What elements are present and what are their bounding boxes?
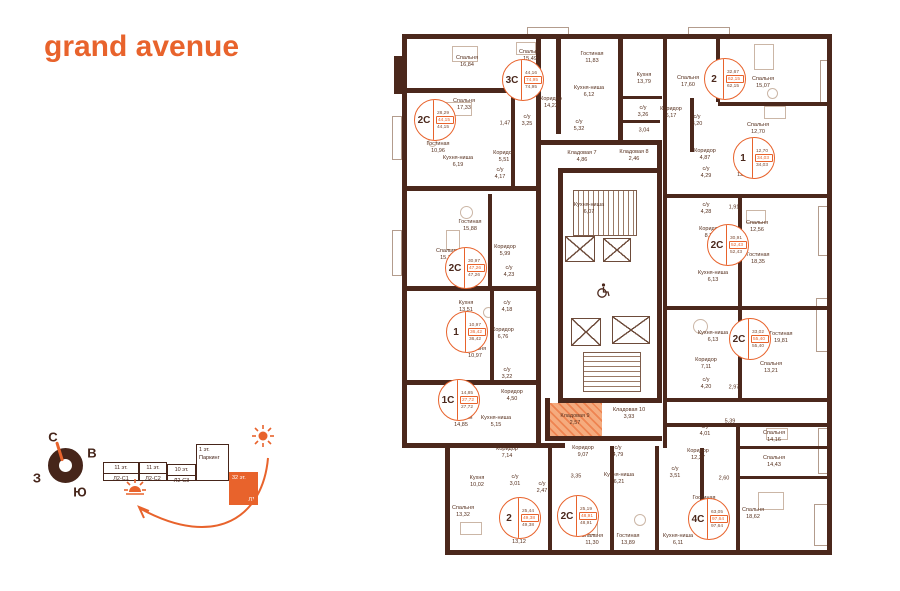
elevator-shaft-icon (603, 238, 631, 262)
unit-badge-2С[interactable]: 2С30,9152,4352,43 (707, 224, 749, 266)
room-label: Гостиная11,83 (580, 51, 603, 65)
furniture (754, 44, 774, 70)
room-label: Спальня13,32 (452, 505, 474, 519)
room-label: с/у4,28 (701, 202, 712, 216)
room-label: с/у3,25 (522, 114, 533, 128)
room-label: с/у3,22 (502, 367, 513, 381)
room-label-storage-selected[interactable]: Кладовая 92,57 (560, 413, 589, 427)
room-label: с/у4,17 (495, 167, 506, 181)
staircase-lower (583, 352, 641, 392)
room-label: Кухня-ниша6,21 (604, 472, 634, 486)
wall (488, 194, 492, 286)
unit-type-label: 2С (446, 248, 465, 288)
unit-badge-2[interactable]: 225,4449,3849,38 (499, 497, 541, 539)
room-label: с/у3,01 (510, 474, 521, 488)
room-label: Кухня-ниша6,11 (663, 533, 693, 547)
unit-badge-2С[interactable]: 2С30,9747,2647,26 (445, 247, 487, 289)
room-label: Кладовая 103,93 (613, 407, 645, 421)
room-label: Коридор6,17 (660, 106, 682, 120)
wall (663, 398, 830, 402)
wall (402, 186, 540, 191)
room-label: Спальня13,21 (760, 361, 782, 375)
room-label: с/у2,47 (537, 481, 548, 495)
room-label: Кладовая 82,46 (619, 149, 648, 163)
unit-badge-1С[interactable]: 1С14,8527,7227,72 (438, 379, 480, 421)
room-label: Коридор5,99 (494, 244, 516, 258)
unit-badge-4С[interactable]: 4С63,0597,6497,64 (688, 498, 730, 540)
room-label: Коридор6,76 (492, 327, 514, 341)
room-label: Коридор4,87 (694, 148, 716, 162)
room-label: Гостиная18,35 (746, 252, 769, 266)
room-label: 3,04 (639, 127, 650, 134)
room-label: Гостиная19,81 (769, 331, 792, 345)
room-label: Спальня12,70 (747, 122, 769, 136)
room-label: с/у4,23 (504, 265, 515, 279)
floor-plan-page: grand avenue С В З Ю 11 эт. Л2-С1 11 эт.… (0, 0, 900, 591)
room-label: Коридор7,14 (496, 446, 518, 460)
room-label: Коридор12,37 (687, 448, 709, 462)
wall (618, 34, 623, 144)
wall (736, 425, 740, 552)
room-label: Спальня14,16 (763, 430, 785, 444)
unit-type-label: 2С (558, 496, 577, 536)
unit-type-label: 1 (447, 312, 466, 352)
wall (740, 446, 830, 449)
unit-type-label: 2 (705, 59, 724, 99)
room-label: Гостиная13,89 (616, 533, 639, 547)
room-label: Спальня15,07 (752, 76, 774, 90)
wall (740, 476, 830, 479)
unit-badge-2С[interactable]: 2С25,1948,9148,91 (557, 495, 599, 537)
room-label: Коридор9,07 (572, 445, 594, 459)
room-label: Коридор14,23 (540, 96, 562, 110)
room-label: 2,60 (719, 475, 730, 482)
room-label: Кладовая 74,86 (567, 150, 596, 164)
wall (402, 34, 832, 39)
unit-badge-1[interactable]: 112,7034,0334,03 (733, 137, 775, 179)
room-label: Коридор7,11 (695, 357, 717, 371)
room-label: Гостиная15,88 (458, 219, 481, 233)
room-label: Спальня17,60 (677, 75, 699, 89)
wall (445, 550, 832, 555)
wall (618, 120, 660, 123)
wall (511, 96, 515, 190)
wall (540, 140, 662, 145)
wall (655, 446, 659, 552)
room-label: с/у4,20 (701, 377, 712, 391)
furniture (764, 106, 786, 119)
wall (548, 446, 552, 552)
room-label: Кухня-ниша6,12 (574, 85, 604, 99)
wall (618, 96, 662, 99)
balcony (392, 116, 402, 160)
unit-badge-2С[interactable]: 2С33,0255,4055,40 (729, 318, 771, 360)
unit-badge-2С[interactable]: 2С28,2944,1544,15 (414, 99, 456, 141)
balcony (392, 230, 402, 276)
wall (445, 443, 450, 555)
wall (663, 194, 830, 198)
table-icon (460, 206, 473, 219)
room-label: с/у3,51 (670, 466, 681, 480)
room-label: 3,35 (571, 473, 582, 480)
floor-plan: Спальня16,84Спальня17,33Гостиная10,96Кух… (0, 0, 900, 591)
unit-areas: 30,9747,2647,26 (465, 248, 486, 288)
wall (610, 446, 614, 552)
unit-badge-3С[interactable]: 3С44,1674,9574,95 (502, 59, 544, 101)
unit-type-label: 3С (503, 60, 522, 100)
room-label: Кухня-ниша6,13 (698, 330, 728, 344)
unit-type-label: 2С (730, 319, 749, 359)
room-label: Спальня14,43 (763, 455, 785, 469)
room-label: с/у4,29 (701, 166, 712, 180)
unit-areas: 30,9152,4352,43 (727, 225, 748, 265)
wall (558, 398, 662, 403)
room-label: 2,97 (729, 384, 740, 391)
unit-areas: 12,7034,0334,03 (753, 138, 774, 178)
unit-badge-2[interactable]: 232,6762,1562,15 (704, 58, 746, 100)
room-label: Спальня17,33 (453, 98, 475, 112)
wall (558, 168, 563, 402)
wall (545, 398, 550, 440)
unit-areas: 63,0597,6497,64 (708, 499, 729, 539)
unit-areas: 25,4449,3849,38 (519, 498, 540, 538)
wall (657, 140, 662, 402)
wall (663, 423, 830, 427)
room-label: Кухня10,02 (470, 475, 485, 489)
wall (556, 34, 561, 134)
table-icon (634, 514, 646, 526)
room-label: Спальня12,56 (746, 220, 768, 234)
unit-type-label: 2С (415, 100, 434, 140)
elevator-shaft-icon (571, 318, 601, 346)
unit-type-label: 2 (500, 498, 519, 538)
unit-areas: 14,8527,7227,72 (458, 380, 479, 420)
room-label: с/у3,20 (692, 114, 703, 128)
room-label: 5,39 (725, 418, 736, 425)
room-label: Коридор4,50 (501, 389, 523, 403)
wall (545, 436, 662, 441)
room-label: с/у4,18 (502, 300, 513, 314)
furniture (460, 522, 482, 535)
room-label: Кухня-ниша6,13 (698, 270, 728, 284)
unit-areas: 32,6762,1562,15 (724, 59, 745, 99)
room-label: Гостиная10,96 (426, 141, 449, 155)
room-label: с/у3,26 (638, 105, 649, 119)
room-label: 1,47 (500, 120, 511, 127)
room-label: Кухня13,79 (637, 72, 652, 86)
unit-areas: 33,0255,4055,40 (749, 319, 770, 359)
unit-type-label: 2С (708, 225, 727, 265)
unit-badge-1[interactable]: 110,9736,4236,42 (446, 311, 488, 353)
room-label: Спальня16,84 (456, 55, 478, 69)
room-label: Спальня18,62 (742, 507, 764, 521)
room-label: Кухня-ниша6,19 (443, 155, 473, 169)
room-label: Коридор5,51 (493, 150, 515, 164)
elevator-shaft-icon (612, 316, 650, 344)
wall (558, 168, 662, 173)
room-label: с/у5,32 (574, 119, 585, 133)
room-label: Кухня-ниша6,07 (574, 202, 604, 216)
wall (402, 34, 407, 448)
room-label: с/у4,01 (700, 424, 711, 438)
wall (718, 102, 830, 106)
room-label: Кухня-ниша5,15 (481, 415, 511, 429)
room-label: 1,91 (729, 204, 740, 211)
wall (394, 56, 402, 94)
wall (663, 306, 830, 310)
elevator-shaft-icon (565, 236, 595, 262)
wall (663, 34, 667, 448)
wheelchair-icon (596, 283, 610, 299)
room-label: с/у4,79 (613, 445, 624, 459)
unit-type-label: 1С (439, 380, 458, 420)
